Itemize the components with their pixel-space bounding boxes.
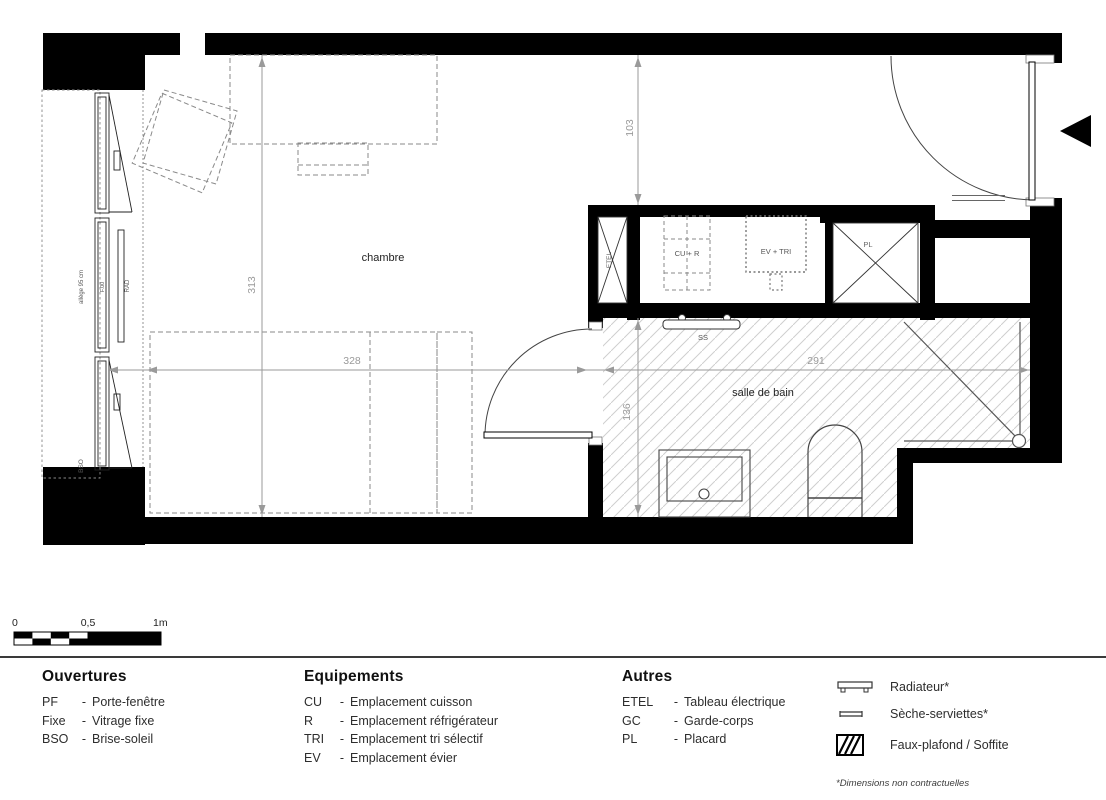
dim-291: 291 bbox=[807, 355, 825, 367]
ev-tri-zone bbox=[746, 216, 806, 272]
legend-item: ETEL-Tableau électrique bbox=[622, 693, 785, 712]
dim-328: 328 bbox=[343, 355, 361, 367]
legend-item: CU-Emplacement cuisson bbox=[304, 693, 498, 712]
wall-shower-bottom bbox=[897, 448, 1062, 463]
wall-top-b bbox=[205, 33, 1062, 55]
room-label-salle-de-bain: salle de bain bbox=[732, 387, 794, 399]
bso-zone bbox=[42, 90, 100, 478]
legend-ouvertures-title: Ouvertures bbox=[42, 668, 165, 686]
furniture bbox=[132, 55, 472, 513]
label-rad: RAD bbox=[125, 279, 131, 292]
wall-bottom-left-block bbox=[43, 467, 145, 545]
wall-bath-step bbox=[897, 448, 913, 517]
floor-plan-svg: chambre salle de bain 328 291 313 103 13… bbox=[0, 0, 1106, 660]
legend-symbols: Radiateur* Sèche-serviettes* Faux-plafon… bbox=[836, 680, 1009, 769]
legend-item: PL-Placard bbox=[622, 730, 785, 749]
label-ss: SS bbox=[698, 333, 708, 342]
dim-103: 103 bbox=[624, 119, 636, 137]
legend-symbol-label: Radiateur* bbox=[890, 680, 949, 694]
sink-drain bbox=[699, 489, 709, 499]
legend-symbol-label: Sèche-serviettes* bbox=[890, 707, 988, 721]
legend: Ouvertures PF-Porte-fenêtre Fixe-Vitrage… bbox=[0, 658, 1106, 800]
legend-item: PF-Porte-fenêtre bbox=[42, 693, 165, 712]
radiator-icon bbox=[836, 680, 880, 694]
dim-313: 313 bbox=[246, 276, 258, 294]
wall-pl-left bbox=[825, 218, 833, 308]
legend-item: BSO-Brise-soleil bbox=[42, 730, 165, 749]
room-label-chambre: chambre bbox=[362, 252, 405, 264]
scale-1m: 1m bbox=[153, 617, 168, 629]
wall-top-left-block bbox=[43, 33, 145, 90]
legend-equipements: Equipements CU-Emplacement cuisson R-Emp… bbox=[304, 668, 498, 767]
legend-symbol-label: Faux-plafond / Soffite bbox=[890, 738, 1009, 752]
false-ceiling-icon bbox=[836, 734, 880, 756]
desk-outline bbox=[230, 55, 437, 144]
entry-door-leaf bbox=[1029, 62, 1035, 200]
radiator-symbol bbox=[118, 230, 124, 342]
armchair-outline-2 bbox=[132, 93, 232, 193]
scale-05: 0,5 bbox=[81, 617, 96, 629]
towel-dryer-icon bbox=[836, 709, 880, 719]
label-etel: ETEL bbox=[606, 251, 613, 268]
label-f00: F.00 bbox=[100, 282, 106, 292]
label-ev-tri: EV + TRI bbox=[761, 247, 792, 256]
label-pl: PL bbox=[863, 240, 872, 249]
legend-autres: Autres ETEL-Tableau électrique GC-Garde-… bbox=[622, 668, 785, 749]
entrance-arrow-icon bbox=[1060, 115, 1091, 147]
legend-ouvertures: Ouvertures PF-Porte-fenêtre Fixe-Vitrage… bbox=[42, 668, 165, 749]
legend-item: Fixe-Vitrage fixe bbox=[42, 712, 165, 731]
bathroom-door-leaf bbox=[484, 432, 592, 438]
shower-drain bbox=[1013, 435, 1026, 448]
wall-hall-pocket bbox=[935, 220, 1062, 238]
bed-headboard-outline bbox=[437, 332, 472, 513]
legend-item: GC-Garde-corps bbox=[622, 712, 785, 731]
legend-autres-title: Autres bbox=[622, 668, 785, 686]
legend-item: R-Emplacement réfrigérateur bbox=[304, 712, 498, 731]
wall-bathroom-top bbox=[588, 303, 1062, 318]
pl-closet bbox=[833, 223, 918, 303]
wall-bottom bbox=[140, 517, 913, 544]
label-cu-r: CU + R bbox=[675, 249, 700, 258]
legend-item: EV-Emplacement évier bbox=[304, 749, 498, 768]
legend-equipements-title: Equipements bbox=[304, 668, 498, 686]
entry-door bbox=[891, 56, 1035, 201]
bathroom-door bbox=[484, 329, 592, 438]
label-allege: allège 95 cm bbox=[79, 270, 85, 304]
wall-bath-door-below bbox=[588, 443, 603, 517]
desk-chair-outline bbox=[298, 143, 368, 175]
scale-0: 0 bbox=[12, 617, 18, 629]
wall-kitchen-top bbox=[640, 205, 830, 217]
dim-136: 136 bbox=[621, 403, 633, 421]
scale-bar: 0 0,5 1m bbox=[12, 617, 168, 645]
floor-plan: chambre salle de bain 328 291 313 103 13… bbox=[0, 0, 1106, 660]
legend-footnote: *Dimensions non contractuelles bbox=[836, 778, 969, 789]
wall-pl-top bbox=[820, 205, 935, 223]
legend-symbol-faux-plafond: Faux-plafond / Soffite bbox=[836, 734, 1009, 756]
wall-top-a bbox=[145, 33, 180, 55]
bed-outline bbox=[150, 332, 437, 513]
legend-item: TRI-Emplacement tri sélectif bbox=[304, 730, 498, 749]
label-bso: BSO bbox=[78, 459, 85, 473]
legend-symbol-seche-serviettes: Sèche-serviettes* bbox=[836, 707, 1009, 721]
legend-symbol-radiateur: Radiateur* bbox=[836, 680, 1009, 694]
